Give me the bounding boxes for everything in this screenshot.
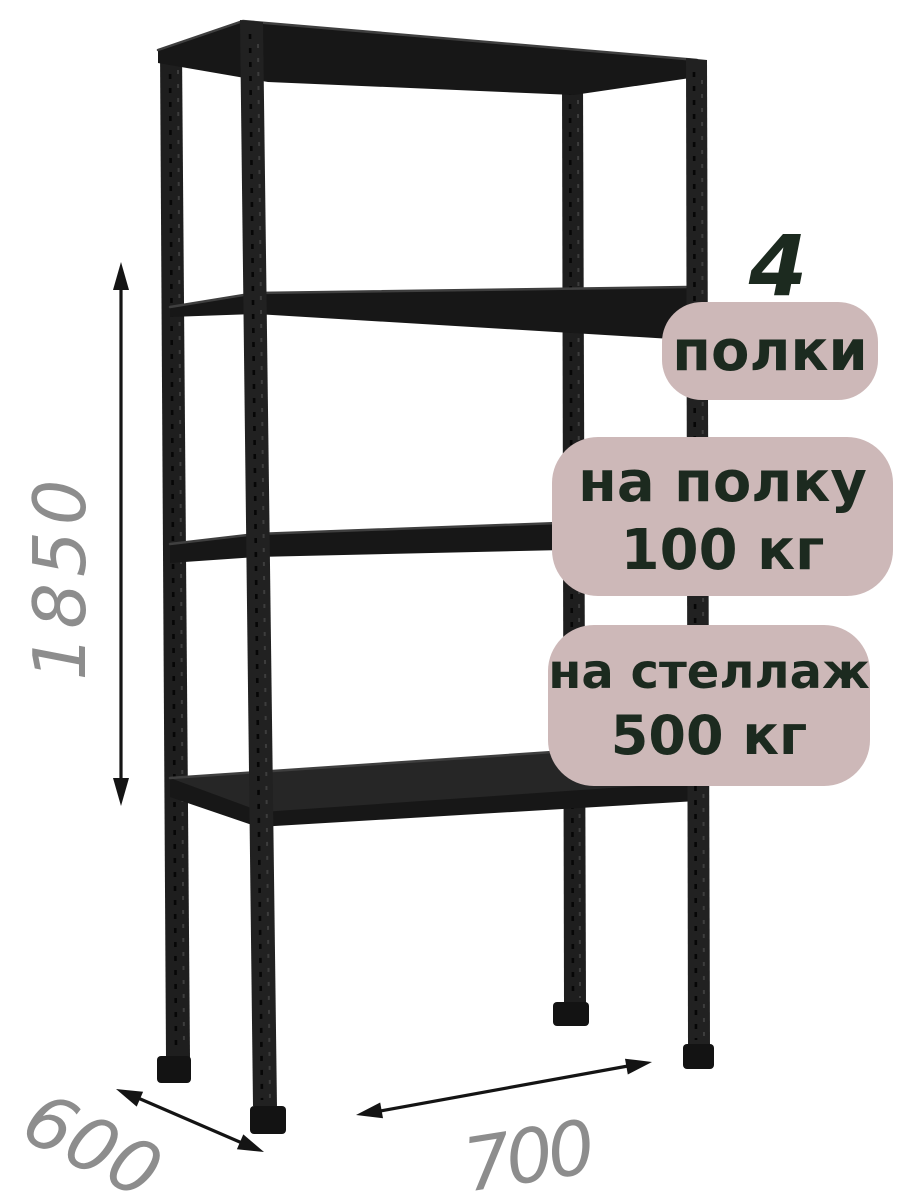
foot-cap [683,1044,714,1069]
shelving-rack-illustration [0,0,900,1200]
shelf-1 [158,21,697,95]
foot-cap [553,1002,589,1026]
per-shelf-load-badge: на полку 100 кг [552,437,893,596]
rack-post-front-left [240,20,286,1134]
shelf-count-badge: полки [662,302,878,400]
per-rack-load-badge: на стеллаж 500 кг [548,625,870,786]
width-arrow [356,1059,652,1119]
height-dimension-label: 1850 [18,473,102,680]
height-arrow [113,262,129,806]
product-image: 4 полки на полку 100 кг на стеллаж 500 к… [0,0,900,1200]
shelf-count-label: полки [672,319,867,384]
per-shelf-load-line2: 100 кг [621,517,825,584]
rack-post-back-left [157,48,191,1083]
per-rack-load-line1: на стеллаж [548,642,870,702]
shelf-count-number: 4 [733,224,823,308]
per-shelf-load-line1: на полку [578,449,867,516]
foot-cap [250,1106,286,1134]
per-rack-load-line2: 500 кг [611,702,807,770]
foot-cap [157,1056,191,1083]
